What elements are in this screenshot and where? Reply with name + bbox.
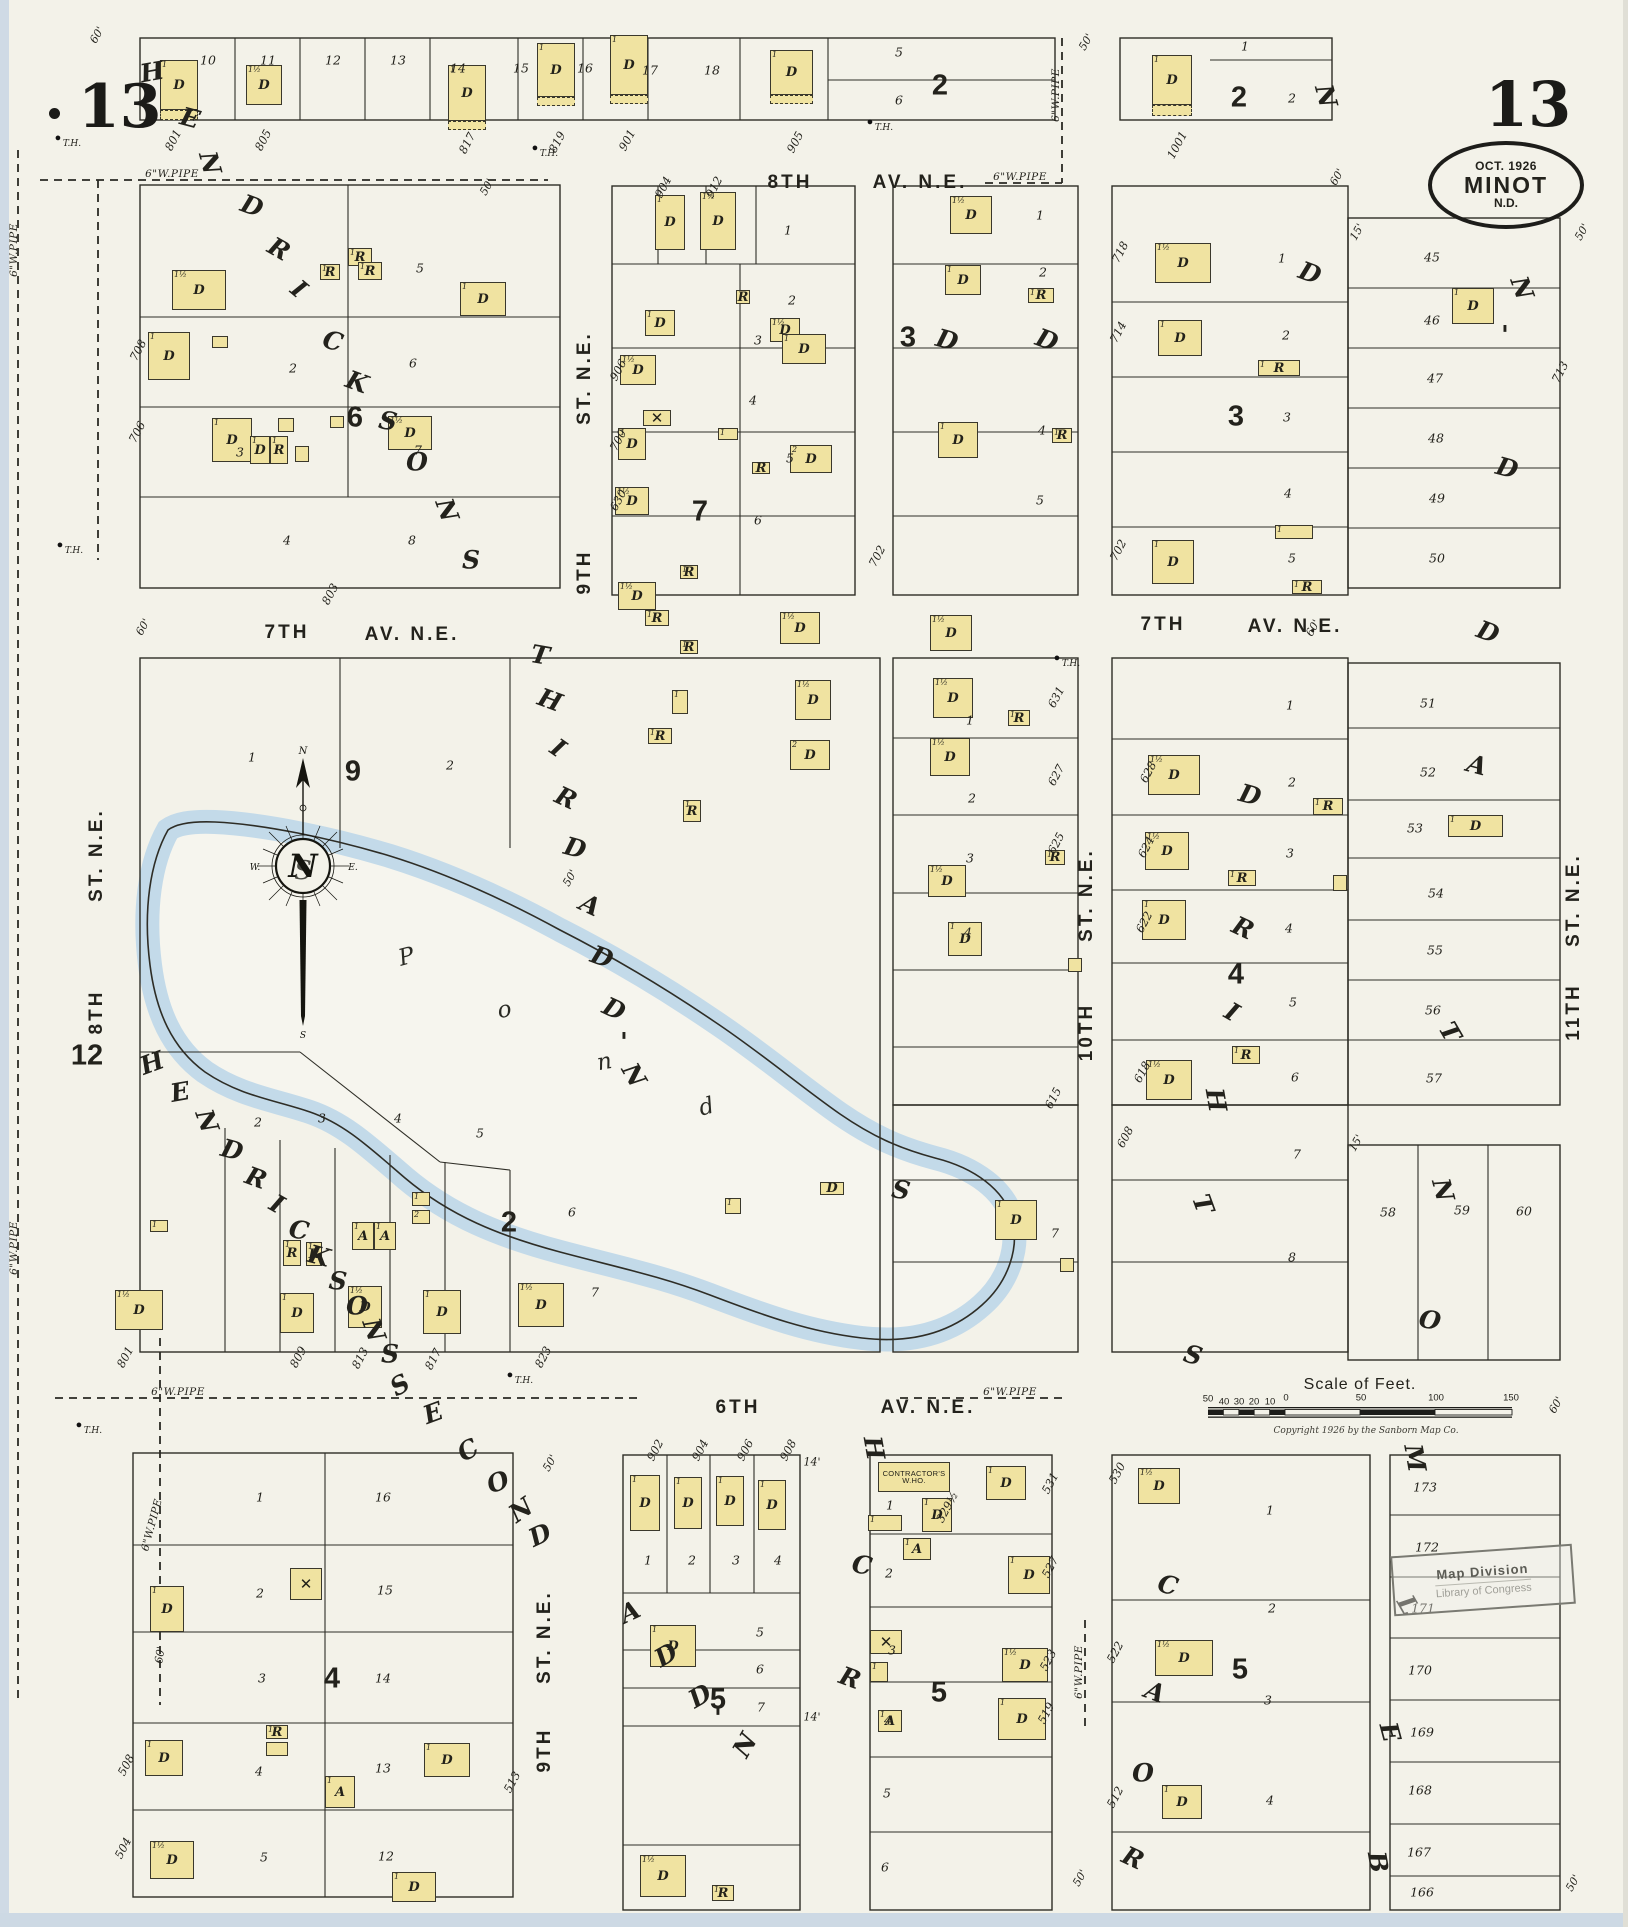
- big-label: O: [1132, 1759, 1154, 1788]
- lot-label: 6: [568, 1205, 576, 1220]
- building-use-label: ✕: [871, 1631, 901, 1653]
- sheet-dot: [49, 108, 60, 119]
- building-storeys-label: 1: [282, 1293, 287, 1302]
- building-storeys-label: 1: [682, 640, 687, 649]
- building: R1: [1258, 360, 1300, 376]
- lot-label: 56: [1425, 1003, 1441, 1018]
- building: [1068, 958, 1082, 972]
- lot-label: 4: [749, 393, 757, 408]
- building-use-label: D: [821, 1183, 843, 1194]
- dot-label: ●: [76, 1419, 83, 1431]
- lot-label: 1: [1241, 39, 1249, 54]
- building-storeys-label: 1½: [117, 1290, 130, 1299]
- building-storeys-label: 1: [539, 43, 544, 52]
- dot-label: ●: [1054, 652, 1061, 664]
- lot-label: 5: [756, 1625, 764, 1640]
- scan-edge-right: [1623, 0, 1628, 1927]
- building-storeys-label: 1: [988, 1466, 993, 1475]
- building: [537, 97, 575, 106]
- building: R: [752, 462, 770, 474]
- lot-label: 12: [378, 1849, 394, 1864]
- bn-label: 3: [1228, 401, 1244, 434]
- building-storeys-label: 1: [1160, 320, 1165, 329]
- building-storeys-label: 1: [425, 1290, 430, 1299]
- pipe-label: 6"W.PIPE: [8, 1221, 20, 1275]
- bn-label: 4: [1228, 959, 1244, 992]
- building-storeys-label: 1: [647, 310, 652, 319]
- lot-label: 49: [1429, 491, 1445, 506]
- bn-label: 2: [1231, 82, 1247, 115]
- building: D1: [1448, 815, 1503, 837]
- building: D1: [460, 282, 506, 316]
- building-use-label: D: [393, 1873, 435, 1901]
- building: D1: [150, 1586, 184, 1632]
- building: R1: [1232, 1046, 1260, 1064]
- building: D1½: [928, 865, 966, 897]
- building-storeys-label: 2: [414, 1210, 419, 1219]
- building-storeys-label: 1: [462, 282, 467, 291]
- lot-label: 12: [325, 53, 341, 68]
- building-storeys-label: 1: [718, 1476, 723, 1485]
- lot-label: 168: [1408, 1783, 1432, 1798]
- lot-label: 1: [1036, 208, 1044, 223]
- building: D1: [995, 1200, 1037, 1240]
- building-storeys-label: 1: [1454, 288, 1459, 297]
- dim-label: 14': [803, 1711, 820, 1724]
- lot-label: 4: [1266, 1793, 1274, 1808]
- building-storeys-label: 1: [350, 248, 355, 257]
- building-storeys-label: 1: [685, 800, 690, 809]
- lot-label: 13: [375, 1761, 391, 1776]
- lot-label: 17: [642, 63, 658, 78]
- lot-label: 5: [416, 261, 424, 276]
- building: D1: [392, 1872, 436, 1902]
- lot-label: 53: [1407, 821, 1423, 836]
- building: ✕: [290, 1568, 322, 1600]
- lot-label: 14: [375, 1671, 391, 1686]
- pipe-label: 6"W.PIPE: [1050, 68, 1062, 122]
- building: [278, 418, 294, 432]
- lot-label: 5: [260, 1850, 268, 1865]
- tick-label: 30: [1234, 1397, 1245, 1408]
- st-label: 10TH: [1076, 1003, 1098, 1061]
- lot-label: 51: [1420, 696, 1436, 711]
- bn-label: 3: [900, 322, 916, 355]
- building-use-label: R: [737, 291, 749, 303]
- lot-label: 15: [513, 61, 529, 76]
- building-storeys-label: 1: [414, 1192, 419, 1201]
- building: D1: [212, 418, 252, 462]
- lot-label: 4: [1284, 486, 1292, 501]
- state-name: N.D.: [1494, 197, 1518, 210]
- building: 1: [672, 690, 688, 714]
- th-label: T.H.: [540, 149, 558, 159]
- lot-label: 5: [883, 1786, 891, 1801]
- th-label: T.H.: [1062, 659, 1080, 669]
- lot-label: 2: [788, 293, 796, 308]
- lot-label: 1: [256, 1490, 264, 1505]
- building-use-label: D: [1159, 321, 1201, 355]
- lot-label: 3: [1283, 410, 1291, 425]
- lot-label: 7: [1051, 1226, 1059, 1241]
- building: R1: [320, 264, 340, 280]
- lot-label: 48: [1428, 431, 1444, 446]
- lot-label: 45: [1424, 250, 1440, 265]
- building-use-label: D: [1449, 816, 1502, 836]
- building: D1: [770, 50, 813, 95]
- dot-label: ●: [867, 116, 874, 128]
- pipe-label: 6"W.PIPE: [8, 223, 20, 277]
- building-use-label: ✕: [644, 411, 670, 425]
- big-label: H: [1200, 1086, 1233, 1114]
- lot-label: 6: [1291, 1070, 1299, 1085]
- big-label: O: [406, 448, 428, 477]
- lot-label: 4: [774, 1553, 782, 1568]
- building: R1: [683, 800, 701, 822]
- building: D1: [423, 1290, 461, 1334]
- lot-label: 59: [1454, 1203, 1470, 1218]
- building: [770, 95, 813, 104]
- building-storeys-label: 1: [714, 1885, 719, 1894]
- lot-label: 1: [784, 223, 792, 238]
- building: R1: [1292, 580, 1322, 594]
- tick-label: 50: [1356, 1393, 1367, 1404]
- lot-label: 18: [704, 63, 720, 78]
- building: D1: [1152, 55, 1192, 105]
- building-storeys-label: 1: [1260, 360, 1265, 369]
- block-outline: [1112, 1105, 1348, 1352]
- sanborn-map-sheet: D1D1½D1D1D1D1D1D1½D1R1R1R1D1D1D1½D1R1D1D…: [0, 0, 1628, 1927]
- lot-label: 7: [1293, 1147, 1301, 1162]
- building-use-label: D: [461, 283, 505, 315]
- building: 1: [868, 1515, 902, 1531]
- building-storeys-label: 1½: [642, 1855, 655, 1864]
- st-label: 6TH: [716, 1397, 761, 1419]
- bn-label: 5: [1232, 1654, 1248, 1687]
- lot-label: 46: [1424, 313, 1440, 328]
- pipe-label: 6"W.PIPE: [151, 1386, 205, 1398]
- lot-label: 6: [881, 1860, 889, 1875]
- st-label: 8TH: [86, 990, 108, 1035]
- building-storeys-label: 1½: [782, 612, 795, 621]
- lot-label: 173: [1413, 1480, 1437, 1495]
- building-storeys-label: 1: [674, 690, 679, 699]
- dot-label: ●: [55, 132, 62, 144]
- building-storeys-label: 1: [1144, 900, 1149, 909]
- building: D1½: [172, 270, 226, 310]
- building-storeys-label: 1½: [797, 680, 810, 689]
- building-storeys-label: 1: [1010, 1556, 1015, 1565]
- building: D1: [1162, 1785, 1202, 1819]
- st-label: 7TH: [265, 622, 310, 644]
- building: [448, 121, 486, 130]
- big-label: O: [346, 1292, 368, 1321]
- building: R1: [648, 728, 672, 744]
- tick-label: 20: [1249, 1397, 1260, 1408]
- building-storeys-label: 1: [647, 610, 652, 619]
- building: A1: [374, 1222, 396, 1250]
- lot-label: 6: [754, 513, 762, 528]
- building: A1: [325, 1776, 355, 1808]
- building-storeys-label: 1: [1277, 525, 1282, 534]
- building-storeys-label: 1: [376, 1222, 381, 1231]
- lot-label: 3: [318, 1111, 326, 1126]
- building: D: [820, 1182, 844, 1195]
- building: D1: [280, 1293, 314, 1333]
- building-storeys-label: 1: [147, 1740, 152, 1749]
- lot-label: 57: [1426, 1071, 1442, 1086]
- building-use-label: ✕: [291, 1569, 321, 1599]
- big-label: ': [1501, 321, 1509, 350]
- building: R1: [266, 1725, 288, 1739]
- building: R1: [1228, 870, 1256, 886]
- lot-label: 2: [1288, 91, 1296, 106]
- building: 1: [150, 1220, 168, 1232]
- building: R1: [270, 436, 288, 464]
- building: D1: [424, 1743, 470, 1777]
- lot-label: 55: [1427, 943, 1443, 958]
- st-label: ST. N.E.: [534, 1590, 556, 1684]
- sheet-number-left: 13: [78, 72, 162, 142]
- big-label: H: [858, 1434, 891, 1462]
- big-label: S: [381, 1340, 399, 1369]
- lot-label: 5: [1036, 493, 1044, 508]
- building-storeys-label: 1½: [520, 1283, 533, 1292]
- building-storeys-label: 1: [268, 1725, 273, 1734]
- lot-label: 4: [283, 533, 291, 548]
- lot-label: 1: [248, 750, 256, 765]
- building-use-label: D: [701, 193, 735, 249]
- building: D1: [986, 1466, 1026, 1500]
- building-storeys-label: 1: [784, 334, 789, 343]
- lot-label: 166: [1410, 1885, 1434, 1900]
- lot-label: 16: [577, 61, 593, 76]
- lot-label: 2: [968, 791, 976, 806]
- th-label: T.H.: [515, 1376, 533, 1386]
- lot-label: 11: [260, 53, 276, 68]
- lot-label: 7: [757, 1700, 765, 1715]
- building-storeys-label: 1: [652, 1625, 657, 1634]
- building: D1: [1452, 288, 1494, 324]
- lot-label: 3: [754, 333, 762, 348]
- pipe-label: 6"W.PIPE: [1073, 1645, 1085, 1699]
- building-storeys-label: 1½: [1004, 1648, 1017, 1657]
- building-storeys-label: 1: [947, 265, 952, 274]
- lot-label: 1: [1278, 251, 1286, 266]
- building-storeys-label: 1½: [952, 196, 965, 205]
- building: 1: [1275, 525, 1313, 539]
- building: D1½: [930, 738, 970, 776]
- st-label: AV. N.E.: [881, 1397, 976, 1419]
- building-storeys-label: 1: [1450, 815, 1455, 824]
- building-storeys-label: 1: [1164, 1785, 1169, 1794]
- building: [1152, 105, 1192, 116]
- building: D1: [945, 265, 981, 295]
- title-oval: Oct. 1926 Minot N.D.: [1428, 141, 1584, 229]
- building: Contractor's W.Ho.: [878, 1462, 950, 1492]
- block-outline: [893, 658, 1078, 1105]
- lot-label: 16: [375, 1490, 391, 1505]
- lot-label: 8: [1288, 1250, 1296, 1265]
- building-storeys-label: 1: [1234, 1046, 1239, 1055]
- pipe-label: 6"W.PIPE: [993, 171, 1047, 183]
- lot-label: 3: [236, 445, 244, 460]
- lot-label: 1: [1266, 1503, 1274, 1518]
- block-outline: [1390, 1455, 1560, 1910]
- building-use-label: D: [771, 51, 812, 94]
- lot-label: 3: [966, 851, 974, 866]
- tick-label: 100: [1428, 1393, 1444, 1404]
- library-stamp: Map Division Library of Congress: [1390, 1544, 1576, 1617]
- building-storeys-label: 1: [327, 1776, 332, 1785]
- tick-label: 0: [1283, 1393, 1288, 1404]
- building: D1: [645, 310, 675, 336]
- st-label: 7TH: [1141, 614, 1186, 636]
- lot-label: 58: [1380, 1205, 1396, 1220]
- building-storeys-label: 1: [682, 565, 687, 574]
- building: R1: [712, 1885, 734, 1901]
- tick-label: 10: [1265, 1397, 1276, 1408]
- building: D2: [790, 445, 832, 473]
- building-storeys-label: 1½: [932, 738, 945, 747]
- lot-label: 2: [254, 1115, 262, 1130]
- building-storeys-label: 1: [152, 1586, 157, 1595]
- building: D1: [630, 1475, 660, 1531]
- building: 1: [870, 1662, 888, 1682]
- sheet-number-right: 13: [1485, 68, 1571, 141]
- tick-label: 50: [1203, 1394, 1214, 1405]
- lot-label: 2: [1288, 775, 1296, 790]
- building: D1½: [618, 582, 656, 610]
- lot-label: 50: [1429, 551, 1445, 566]
- th-label: T.H.: [84, 1426, 102, 1436]
- building: R1: [680, 565, 698, 579]
- building: R: [736, 290, 750, 304]
- building: D1½: [1138, 1468, 1180, 1504]
- lot-label: 1: [644, 1553, 652, 1568]
- st-label: AV. N.E.: [365, 624, 460, 646]
- lot-label: 5: [895, 45, 903, 60]
- building-storeys-label: 1: [760, 1480, 765, 1489]
- bn-label: 6: [347, 402, 363, 435]
- st-label: 9TH: [534, 1728, 556, 1773]
- st-label: ST. N.E.: [86, 808, 108, 902]
- building: D1: [148, 332, 190, 380]
- building-storeys-label: 1: [950, 922, 955, 931]
- building: D1: [1152, 540, 1194, 584]
- building: R1: [1313, 798, 1343, 815]
- bn-label: 7: [692, 496, 708, 529]
- building-storeys-label: 1: [322, 264, 327, 273]
- lot-label: 1: [1286, 698, 1294, 713]
- st-label: AV. N.E.: [1248, 616, 1343, 638]
- lot-label: 4: [255, 1764, 263, 1779]
- tick-label: 40: [1219, 1397, 1230, 1408]
- building: D1: [674, 1477, 702, 1529]
- lot-label: 4: [964, 925, 972, 940]
- building-storeys-label: 1: [1154, 55, 1159, 64]
- building-storeys-label: 1: [924, 1498, 929, 1507]
- building: R1: [1028, 288, 1054, 303]
- building: D1½: [795, 680, 831, 720]
- building-storeys-label: 1½: [1157, 1640, 1170, 1649]
- th-label: T.H.: [65, 546, 83, 556]
- lot-label: 1: [886, 1498, 894, 1513]
- building: D1½: [700, 192, 736, 250]
- building-storeys-label: 1: [1294, 580, 1299, 589]
- building-storeys-label: 1½: [152, 1841, 165, 1850]
- lot-label: 2: [289, 361, 297, 376]
- building: D1: [758, 1480, 786, 1530]
- building-storeys-label: 1½: [930, 865, 943, 874]
- building-storeys-label: 1: [394, 1872, 399, 1881]
- st-label: 11TH: [1563, 983, 1585, 1040]
- scan-edge-left: [0, 0, 9, 1927]
- building-storeys-label: 1½: [248, 65, 261, 74]
- building: D1: [1158, 320, 1202, 356]
- st-label: ST. N.E.: [574, 331, 596, 425]
- building-storeys-label: 1: [676, 1477, 681, 1486]
- lot-label: 54: [1428, 886, 1444, 901]
- building: [1060, 1258, 1074, 1272]
- building-storeys-label: 1½: [620, 582, 633, 591]
- lot-label: 2: [256, 1586, 264, 1601]
- building: D1½: [1155, 1640, 1213, 1676]
- building-storeys-label: 1: [360, 262, 365, 271]
- building-storeys-label: 1: [872, 1662, 877, 1671]
- building: D1: [160, 60, 198, 110]
- lot-label: 3: [258, 1671, 266, 1686]
- building: D1: [250, 436, 270, 464]
- copyright-note: Copyright 1926 by the Sanborn Map Co.: [1273, 1426, 1458, 1436]
- building: A1: [903, 1538, 931, 1560]
- building: R1: [645, 610, 669, 626]
- building-storeys-label: 1: [1315, 798, 1320, 807]
- lot-label: 4: [1038, 423, 1046, 438]
- building-storeys-label: 2: [792, 740, 797, 749]
- lot-label: 6: [756, 1662, 764, 1677]
- lot-label: 2: [1282, 328, 1290, 343]
- building: D1½: [1148, 755, 1200, 795]
- lot-label: 7: [591, 1285, 599, 1300]
- lot-label: 4: [884, 1713, 892, 1728]
- bn-label: 2: [932, 70, 948, 103]
- lot-label: 6: [895, 93, 903, 108]
- building-storeys-label: 1: [1000, 1698, 1005, 1707]
- building-storeys-label: 1: [650, 728, 655, 737]
- building: [610, 95, 648, 104]
- dim-label: 14': [803, 1456, 820, 1469]
- building-use-label: D: [783, 335, 825, 363]
- building: D1: [145, 1740, 183, 1776]
- lot-label: 13: [390, 53, 406, 68]
- st-label: ST. N.E.: [1563, 853, 1585, 947]
- big-label: S: [462, 546, 480, 575]
- building: D1½: [640, 1855, 686, 1897]
- building: D1½: [246, 65, 282, 105]
- scan-edge-bottom: [0, 1913, 1628, 1927]
- lot-label: 170: [1408, 1663, 1432, 1678]
- building-storeys-label: 1: [632, 1475, 637, 1484]
- building: ✕: [870, 1630, 902, 1654]
- building-storeys-label: 1: [252, 436, 257, 445]
- building-storeys-label: 1: [940, 422, 945, 431]
- scale-title: Scale of Feet.: [1304, 1376, 1417, 1394]
- building-storeys-label: 1½: [1157, 243, 1170, 252]
- building-storeys-label: 1: [272, 436, 277, 445]
- building-storeys-label: 1: [1054, 428, 1059, 437]
- building: 1: [725, 1198, 741, 1214]
